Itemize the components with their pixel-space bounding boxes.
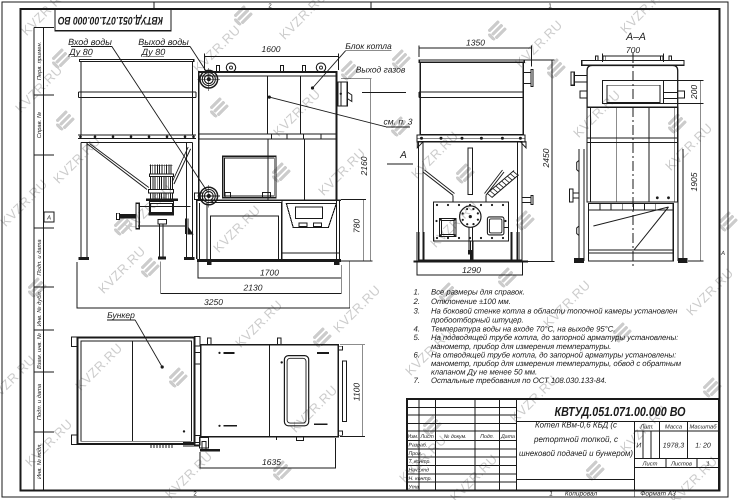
svg-text:Масштаб: Масштаб [689, 424, 717, 431]
svg-text:Ду 80: Ду 80 [68, 47, 92, 57]
svg-text:Котел КВм-0,6 КБД (с: Котел КВм-0,6 КБД (с [535, 420, 618, 430]
svg-text:200: 200 [689, 85, 699, 100]
svg-text:Нач.отд: Нач.отд [409, 468, 430, 474]
svg-text:2450: 2450 [541, 148, 551, 168]
svg-text:Выход воды: Выход воды [138, 37, 189, 47]
svg-text:Блок котла: Блок котла [345, 41, 392, 51]
svg-text:Температура воды на входе 70°С: Температура воды на входе 70°С, на выход… [431, 324, 615, 333]
svg-text:Утв.: Утв. [409, 484, 421, 490]
svg-text:1905: 1905 [689, 172, 699, 191]
svg-text:3.: 3. [413, 307, 420, 316]
svg-text:Вход воды: Вход воды [68, 37, 112, 47]
svg-text:клапаном Ду не менее 50 мм.: клапаном Ду не менее 50 мм. [431, 368, 537, 377]
svg-text:1: 1 [549, 491, 553, 498]
svg-text:Инв. № подл.: Инв. № подл. [36, 443, 43, 479]
svg-text:Н. контр.: Н. контр. [409, 476, 432, 482]
svg-text:А–А: А–А [625, 31, 646, 43]
svg-text:Формат А3: Формат А3 [640, 491, 676, 498]
svg-text:7.: 7. [413, 376, 420, 385]
svg-text:КВТУД.051.071.00.000 ВО: КВТУД.051.071.00.000 ВО [58, 14, 163, 26]
svg-text:Листов: Листов [670, 461, 692, 467]
svg-text:Ду 80: Ду 80 [141, 47, 165, 57]
svg-text:Все размеры для справок.: Все размеры для справок. [431, 288, 525, 297]
svg-text:Выход газов: Выход газов [356, 65, 406, 75]
svg-text:см. п. 3: см. п. 3 [384, 117, 413, 127]
svg-text:1978,3: 1978,3 [663, 443, 685, 450]
svg-text:Лит.: Лит. [639, 425, 654, 431]
svg-text:5.: 5. [413, 333, 420, 342]
svg-text:Инв. № дубл.: Инв. № дубл. [36, 291, 43, 327]
svg-text:6.: 6. [413, 350, 420, 359]
svg-text:3250: 3250 [204, 297, 223, 307]
svg-text:1635: 1635 [262, 457, 281, 467]
svg-text:780: 780 [352, 219, 362, 233]
svg-text:2.: 2. [412, 297, 420, 306]
svg-text:2160: 2160 [359, 156, 369, 176]
svg-text:шнековой подачей и бункером): шнековой подачей и бункером) [519, 448, 633, 458]
svg-text:1600: 1600 [262, 44, 281, 54]
svg-text:4.: 4. [413, 324, 420, 333]
svg-text:1290: 1290 [462, 265, 481, 275]
svg-text:КВТУД.051.071.00.000 ВО: КВТУД.051.071.00.000 ВО [555, 404, 686, 419]
svg-text:Пров.: Пров. [409, 451, 423, 457]
svg-text:А: А [46, 215, 51, 222]
svg-text:1: 20: 1: 20 [695, 443, 711, 450]
svg-text:Лист: Лист [642, 461, 658, 467]
svg-text:Т. контр.: Т. контр. [409, 459, 431, 465]
svg-text:пробоотборный штуцер.: пробоотборный штуцер. [431, 315, 524, 324]
svg-text:1: 1 [706, 460, 709, 467]
svg-text:Перв. примен.: Перв. примен. [37, 42, 43, 81]
svg-text:№ докум.: № докум. [444, 434, 467, 440]
svg-text:Подп. и дата: Подп. и дата [36, 383, 43, 420]
svg-text:Дата: Дата [500, 434, 515, 440]
svg-text:2130: 2130 [243, 283, 263, 293]
svg-text:Отклонение ±100 мм.: Отклонение ±100 мм. [431, 297, 511, 306]
svg-text:Подп.: Подп. [480, 434, 494, 440]
svg-text:Бункер: Бункер [107, 310, 135, 320]
svg-text:А: А [720, 250, 725, 257]
svg-text:Лист: Лист [420, 434, 435, 440]
svg-text:Масса: Масса [665, 425, 683, 431]
svg-text:Остальные требования по ОСТ 10: Остальные требования по ОСТ 108.030.133-… [431, 376, 607, 385]
svg-text:Разраб.: Разраб. [409, 443, 428, 449]
svg-text:ретортной топкой, с: ретортной топкой, с [533, 434, 619, 444]
svg-text:700: 700 [626, 45, 640, 55]
svg-text:А: А [399, 150, 407, 161]
svg-text:1.: 1. [413, 288, 420, 297]
svg-text:Подп. и дата: Подп. и дата [36, 239, 43, 276]
svg-text:1350: 1350 [466, 37, 485, 47]
svg-text:Справ. №: Справ. № [36, 111, 43, 138]
svg-text:Копировал: Копировал [565, 491, 598, 498]
svg-text:Изм.: Изм. [407, 434, 418, 440]
svg-text:1700: 1700 [260, 267, 279, 277]
svg-text:Взам. инв. №: Взам. инв. № [37, 332, 43, 369]
svg-text:1100: 1100 [352, 383, 362, 402]
